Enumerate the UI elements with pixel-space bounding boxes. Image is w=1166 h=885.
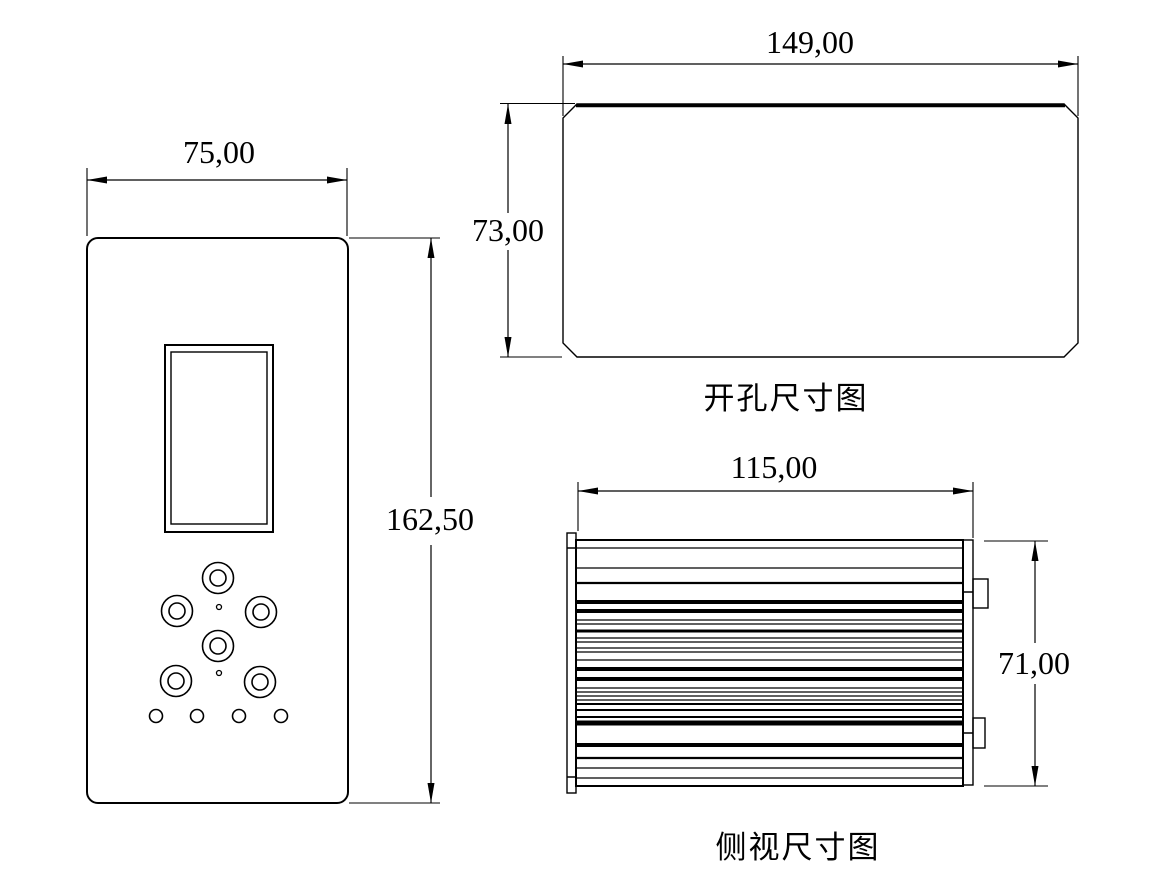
button-inner-ring: [168, 673, 184, 689]
extension-lines: [87, 168, 347, 236]
button-inner-ring: [210, 570, 226, 586]
button-outer-ring: [246, 597, 277, 628]
button-outer-ring: [245, 667, 276, 698]
side-tab-lower: [973, 718, 985, 748]
indicator-hole: [150, 710, 163, 723]
panel-dot: [217, 605, 222, 610]
dimension-label-cutout-width: 149,00: [766, 24, 854, 60]
heatsink-fins: [577, 548, 962, 778]
dimension-label-side-width: 115,00: [731, 449, 818, 485]
cutout-view-title: 开孔尺寸图: [704, 381, 869, 416]
indicator-hole: [233, 710, 246, 723]
dim-front-height: 162,50: [349, 238, 474, 803]
panel-dot: [217, 671, 222, 676]
dimension-label-front-width: 75,00: [183, 134, 255, 170]
side-right-plate-dividers: [963, 592, 973, 733]
side-left-flange: [567, 533, 576, 793]
side-tab-upper: [973, 579, 988, 608]
dim-cutout-width: 149,00: [563, 24, 1078, 116]
button-outer-ring: [203, 563, 234, 594]
side-left-flange-dividers: [567, 548, 576, 777]
dim-side-width: 115,00: [578, 449, 973, 538]
button-outer-ring: [203, 631, 234, 662]
button-inner-ring: [169, 603, 185, 619]
cutout-view: 149,00 73,00 开孔尺寸图: [472, 24, 1078, 416]
side-view: 115,00 71,00 侧视尺寸图: [567, 449, 1070, 865]
side-right-plate: [963, 540, 973, 785]
button-cluster: [150, 563, 288, 723]
drawing-canvas: 75,00 162,50 149,00 73,00 开孔尺寸图: [0, 0, 1166, 885]
cutout-outline: [563, 104, 1078, 357]
dim-side-height: 71,00: [984, 541, 1070, 786]
side-view-title: 侧视尺寸图: [716, 830, 881, 865]
screen-inner: [171, 352, 267, 524]
indicator-hole: [191, 710, 204, 723]
button-outer-ring: [161, 666, 192, 697]
button-outer-ring: [162, 596, 193, 627]
front-panel-outline: [87, 238, 348, 803]
dimension-label-front-height: 162,50: [386, 501, 474, 537]
button-inner-ring: [253, 604, 269, 620]
dim-cutout-height: 73,00: [472, 104, 575, 358]
front-view: 75,00 162,50: [87, 134, 474, 803]
indicator-hole: [275, 710, 288, 723]
dimension-label-cutout-height: 73,00: [472, 212, 544, 248]
button-inner-ring: [210, 638, 226, 654]
side-body: [576, 540, 963, 786]
dimension-label-side-height: 71,00: [998, 645, 1070, 681]
screen-outer: [165, 345, 273, 532]
technical-drawing: 75,00 162,50 149,00 73,00 开孔尺寸图: [0, 0, 1166, 885]
dim-front-width: 75,00: [87, 134, 347, 236]
button-inner-ring: [252, 674, 268, 690]
